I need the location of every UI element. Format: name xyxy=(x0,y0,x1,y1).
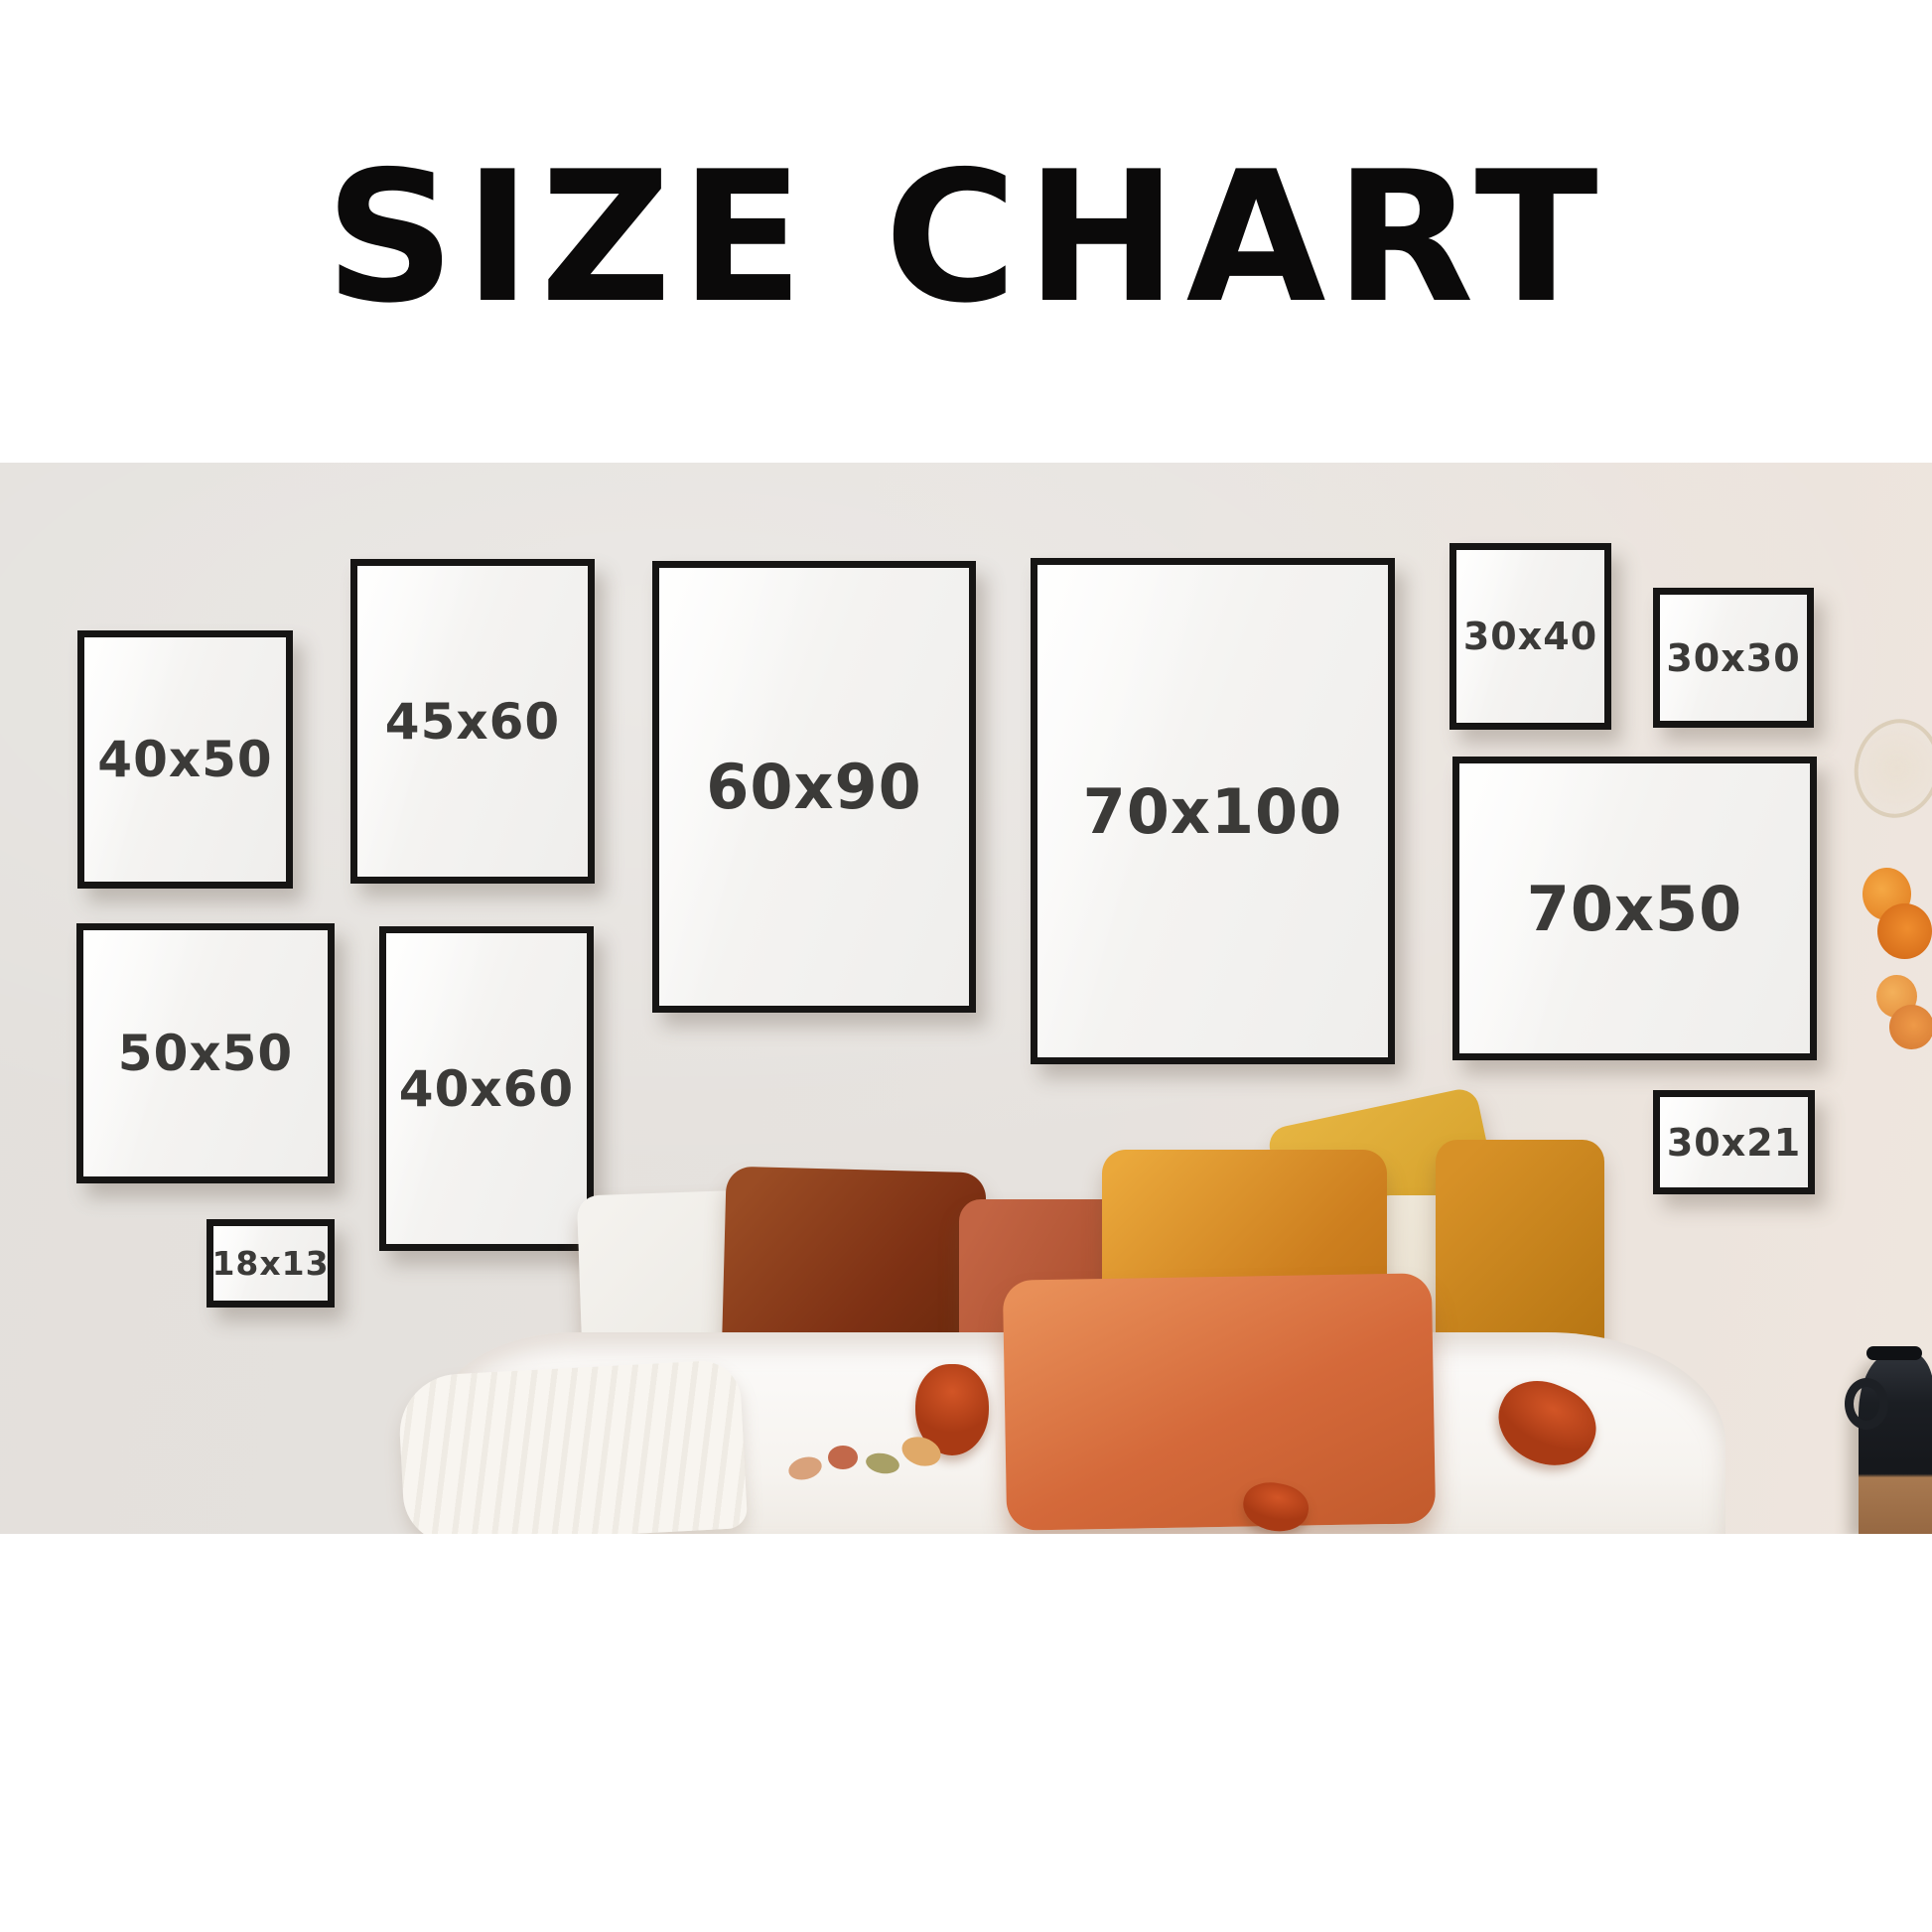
dried-flower-sprig xyxy=(784,1424,948,1498)
page-title: SIZE CHART xyxy=(0,147,1932,328)
frame-60x90: 60x90 xyxy=(652,561,976,1013)
frame-70x50: 70x50 xyxy=(1452,757,1817,1060)
frame-size-label: 60x90 xyxy=(706,751,922,823)
bedroom-wall-photo: 40x50 45x60 60x90 70x100 30x40 30x30 70x… xyxy=(0,463,1932,1534)
top-band: SIZE CHART xyxy=(0,0,1932,463)
dried-flower-hoop xyxy=(1846,711,1932,826)
frame-size-label: 30x30 xyxy=(1666,636,1800,680)
frame-40x60: 40x60 xyxy=(379,926,594,1251)
frame-70x100: 70x100 xyxy=(1031,558,1395,1064)
frame-size-label: 30x40 xyxy=(1463,615,1597,658)
bottom-band: IN CENTIMETERS xyxy=(0,1534,1932,1932)
orange-flower xyxy=(1876,975,1932,1052)
frame-40x50: 40x50 xyxy=(77,630,293,889)
frame-45x60: 45x60 xyxy=(350,559,595,884)
frame-30x30: 30x30 xyxy=(1653,588,1814,728)
frame-size-label: 40x60 xyxy=(399,1060,574,1118)
frame-30x21: 30x21 xyxy=(1653,1090,1815,1194)
frame-size-label: 45x60 xyxy=(385,693,560,751)
frame-size-label: 30x21 xyxy=(1667,1121,1801,1165)
frame-size-label: 70x50 xyxy=(1527,873,1743,945)
frame-size-label: 70x100 xyxy=(1083,775,1343,848)
frame-18x13: 18x13 xyxy=(207,1219,335,1308)
frame-size-label: 40x50 xyxy=(97,731,272,788)
frame-30x40: 30x40 xyxy=(1449,543,1611,730)
size-chart-poster: SIZE CHART 40x50 45x60 60x90 70x100 30x4… xyxy=(0,0,1932,1932)
orange-flower xyxy=(1863,868,1932,963)
frame-50x50: 50x50 xyxy=(76,923,335,1183)
front-orange-tassel-pillow xyxy=(1003,1273,1436,1531)
knit-throw xyxy=(397,1359,748,1534)
frame-size-label: 18x13 xyxy=(211,1244,329,1283)
black-clay-vase xyxy=(1859,1352,1932,1534)
frame-size-label: 50x50 xyxy=(118,1025,293,1082)
